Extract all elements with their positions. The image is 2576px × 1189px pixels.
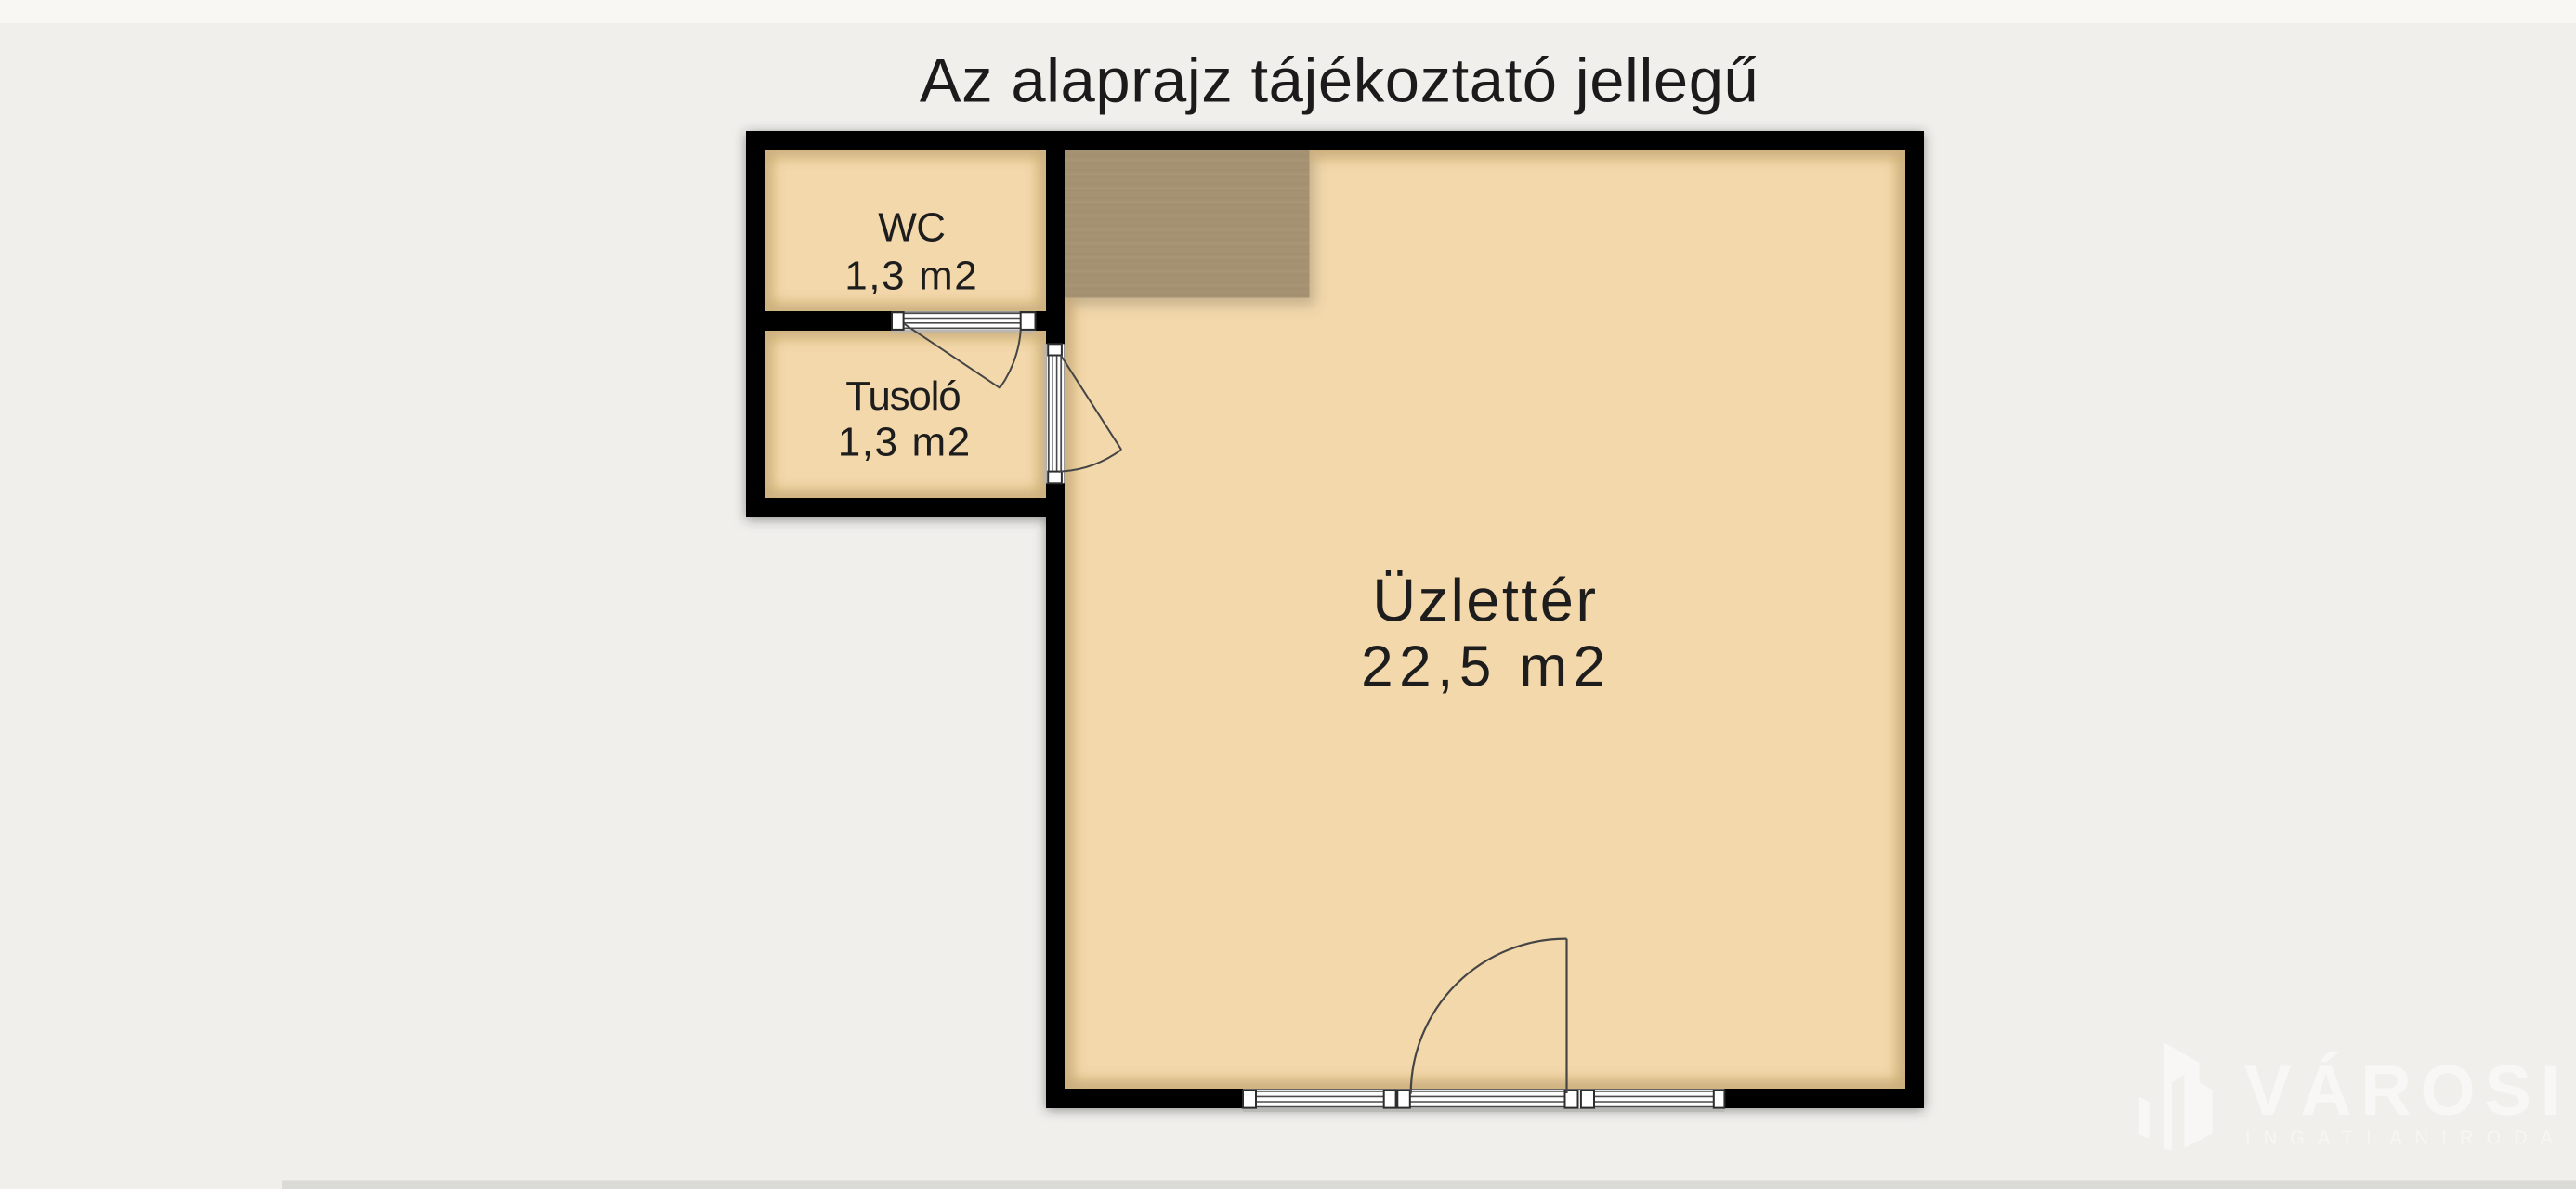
svg-text:Üzlettér: Üzlettér xyxy=(1372,567,1598,634)
svg-text:VÁROSI: VÁROSI xyxy=(2244,1052,2569,1130)
svg-text:1,3 m2: 1,3 m2 xyxy=(838,419,972,464)
svg-text:Tusoló: Tusoló xyxy=(845,373,960,419)
svg-text:Az alaprajz tájékoztató jelleg: Az alaprajz tájékoztató jellegű xyxy=(920,46,1759,115)
svg-text:WC: WC xyxy=(878,205,945,251)
svg-text:1,3 m2: 1,3 m2 xyxy=(844,254,978,299)
svg-text:INGATLANIRODA: INGATLANIRODA xyxy=(2245,1129,2566,1149)
svg-text:22,5 m2: 22,5 m2 xyxy=(1361,635,1612,699)
